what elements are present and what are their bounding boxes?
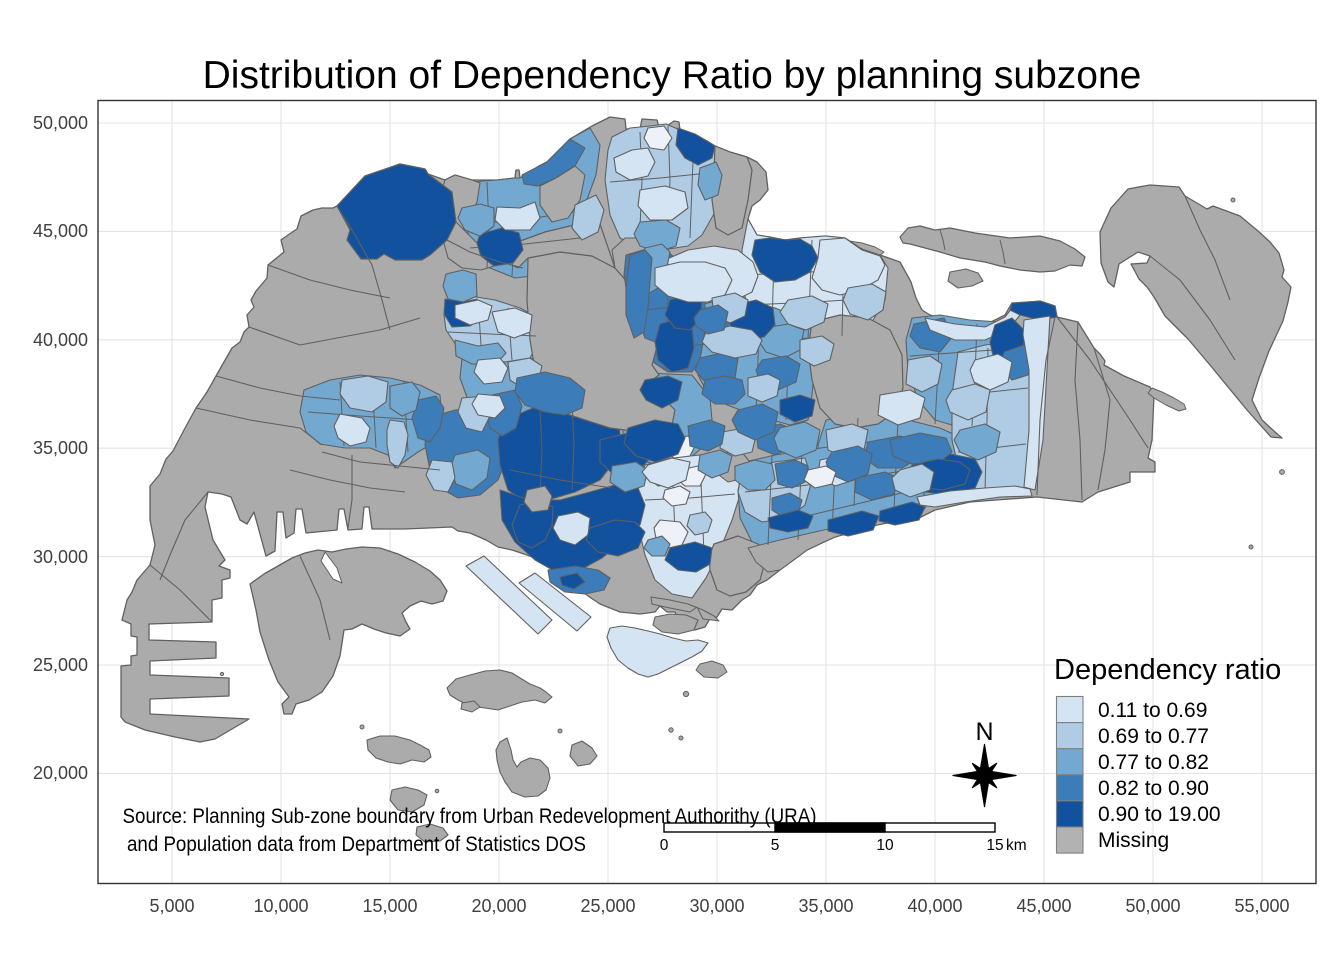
svg-text:15: 15	[986, 837, 1003, 854]
svg-text:Missing: Missing	[1098, 829, 1169, 852]
svg-text:0.77 to 0.82: 0.77 to 0.82	[1098, 751, 1209, 774]
svg-text:Source: Planning Sub-zone boun: Source: Planning Sub-zone boundary from …	[123, 804, 817, 828]
svg-text:Distribution of Dependency Rat: Distribution of Dependency Ratio by plan…	[203, 54, 1142, 97]
svg-text:0.82 to 0.90: 0.82 to 0.90	[1098, 777, 1209, 800]
svg-text:N: N	[975, 718, 993, 746]
svg-text:0: 0	[660, 837, 669, 854]
svg-text:15,000: 15,000	[362, 896, 417, 916]
svg-text:30,000: 30,000	[33, 547, 88, 567]
svg-text:0.90 to 19.00: 0.90 to 19.00	[1098, 803, 1221, 826]
svg-text:25,000: 25,000	[33, 655, 88, 675]
svg-text:20,000: 20,000	[471, 896, 526, 916]
svg-text:0.11 to 0.69: 0.11 to 0.69	[1098, 699, 1207, 722]
svg-text:50,000: 50,000	[33, 113, 88, 133]
svg-text:45,000: 45,000	[1016, 896, 1071, 916]
svg-text:45,000: 45,000	[33, 221, 88, 241]
svg-text:km: km	[1006, 837, 1027, 854]
svg-text:50,000: 50,000	[1125, 896, 1180, 916]
svg-text:5: 5	[771, 837, 780, 854]
svg-text:0.69 to 0.77: 0.69 to 0.77	[1098, 725, 1209, 748]
svg-text:55,000: 55,000	[1234, 896, 1289, 916]
svg-text:and Population data from Depar: and Population data from Department of S…	[127, 832, 586, 856]
svg-text:10: 10	[876, 837, 894, 854]
svg-text:35,000: 35,000	[798, 896, 853, 916]
svg-text:Dependency ratio: Dependency ratio	[1054, 654, 1281, 686]
svg-text:20,000: 20,000	[33, 763, 88, 783]
svg-text:40,000: 40,000	[33, 330, 88, 350]
svg-text:5,000: 5,000	[149, 896, 194, 916]
svg-text:10,000: 10,000	[253, 896, 308, 916]
svg-text:30,000: 30,000	[689, 896, 744, 916]
svg-text:40,000: 40,000	[907, 896, 962, 916]
svg-text:25,000: 25,000	[580, 896, 635, 916]
svg-text:35,000: 35,000	[33, 438, 88, 458]
